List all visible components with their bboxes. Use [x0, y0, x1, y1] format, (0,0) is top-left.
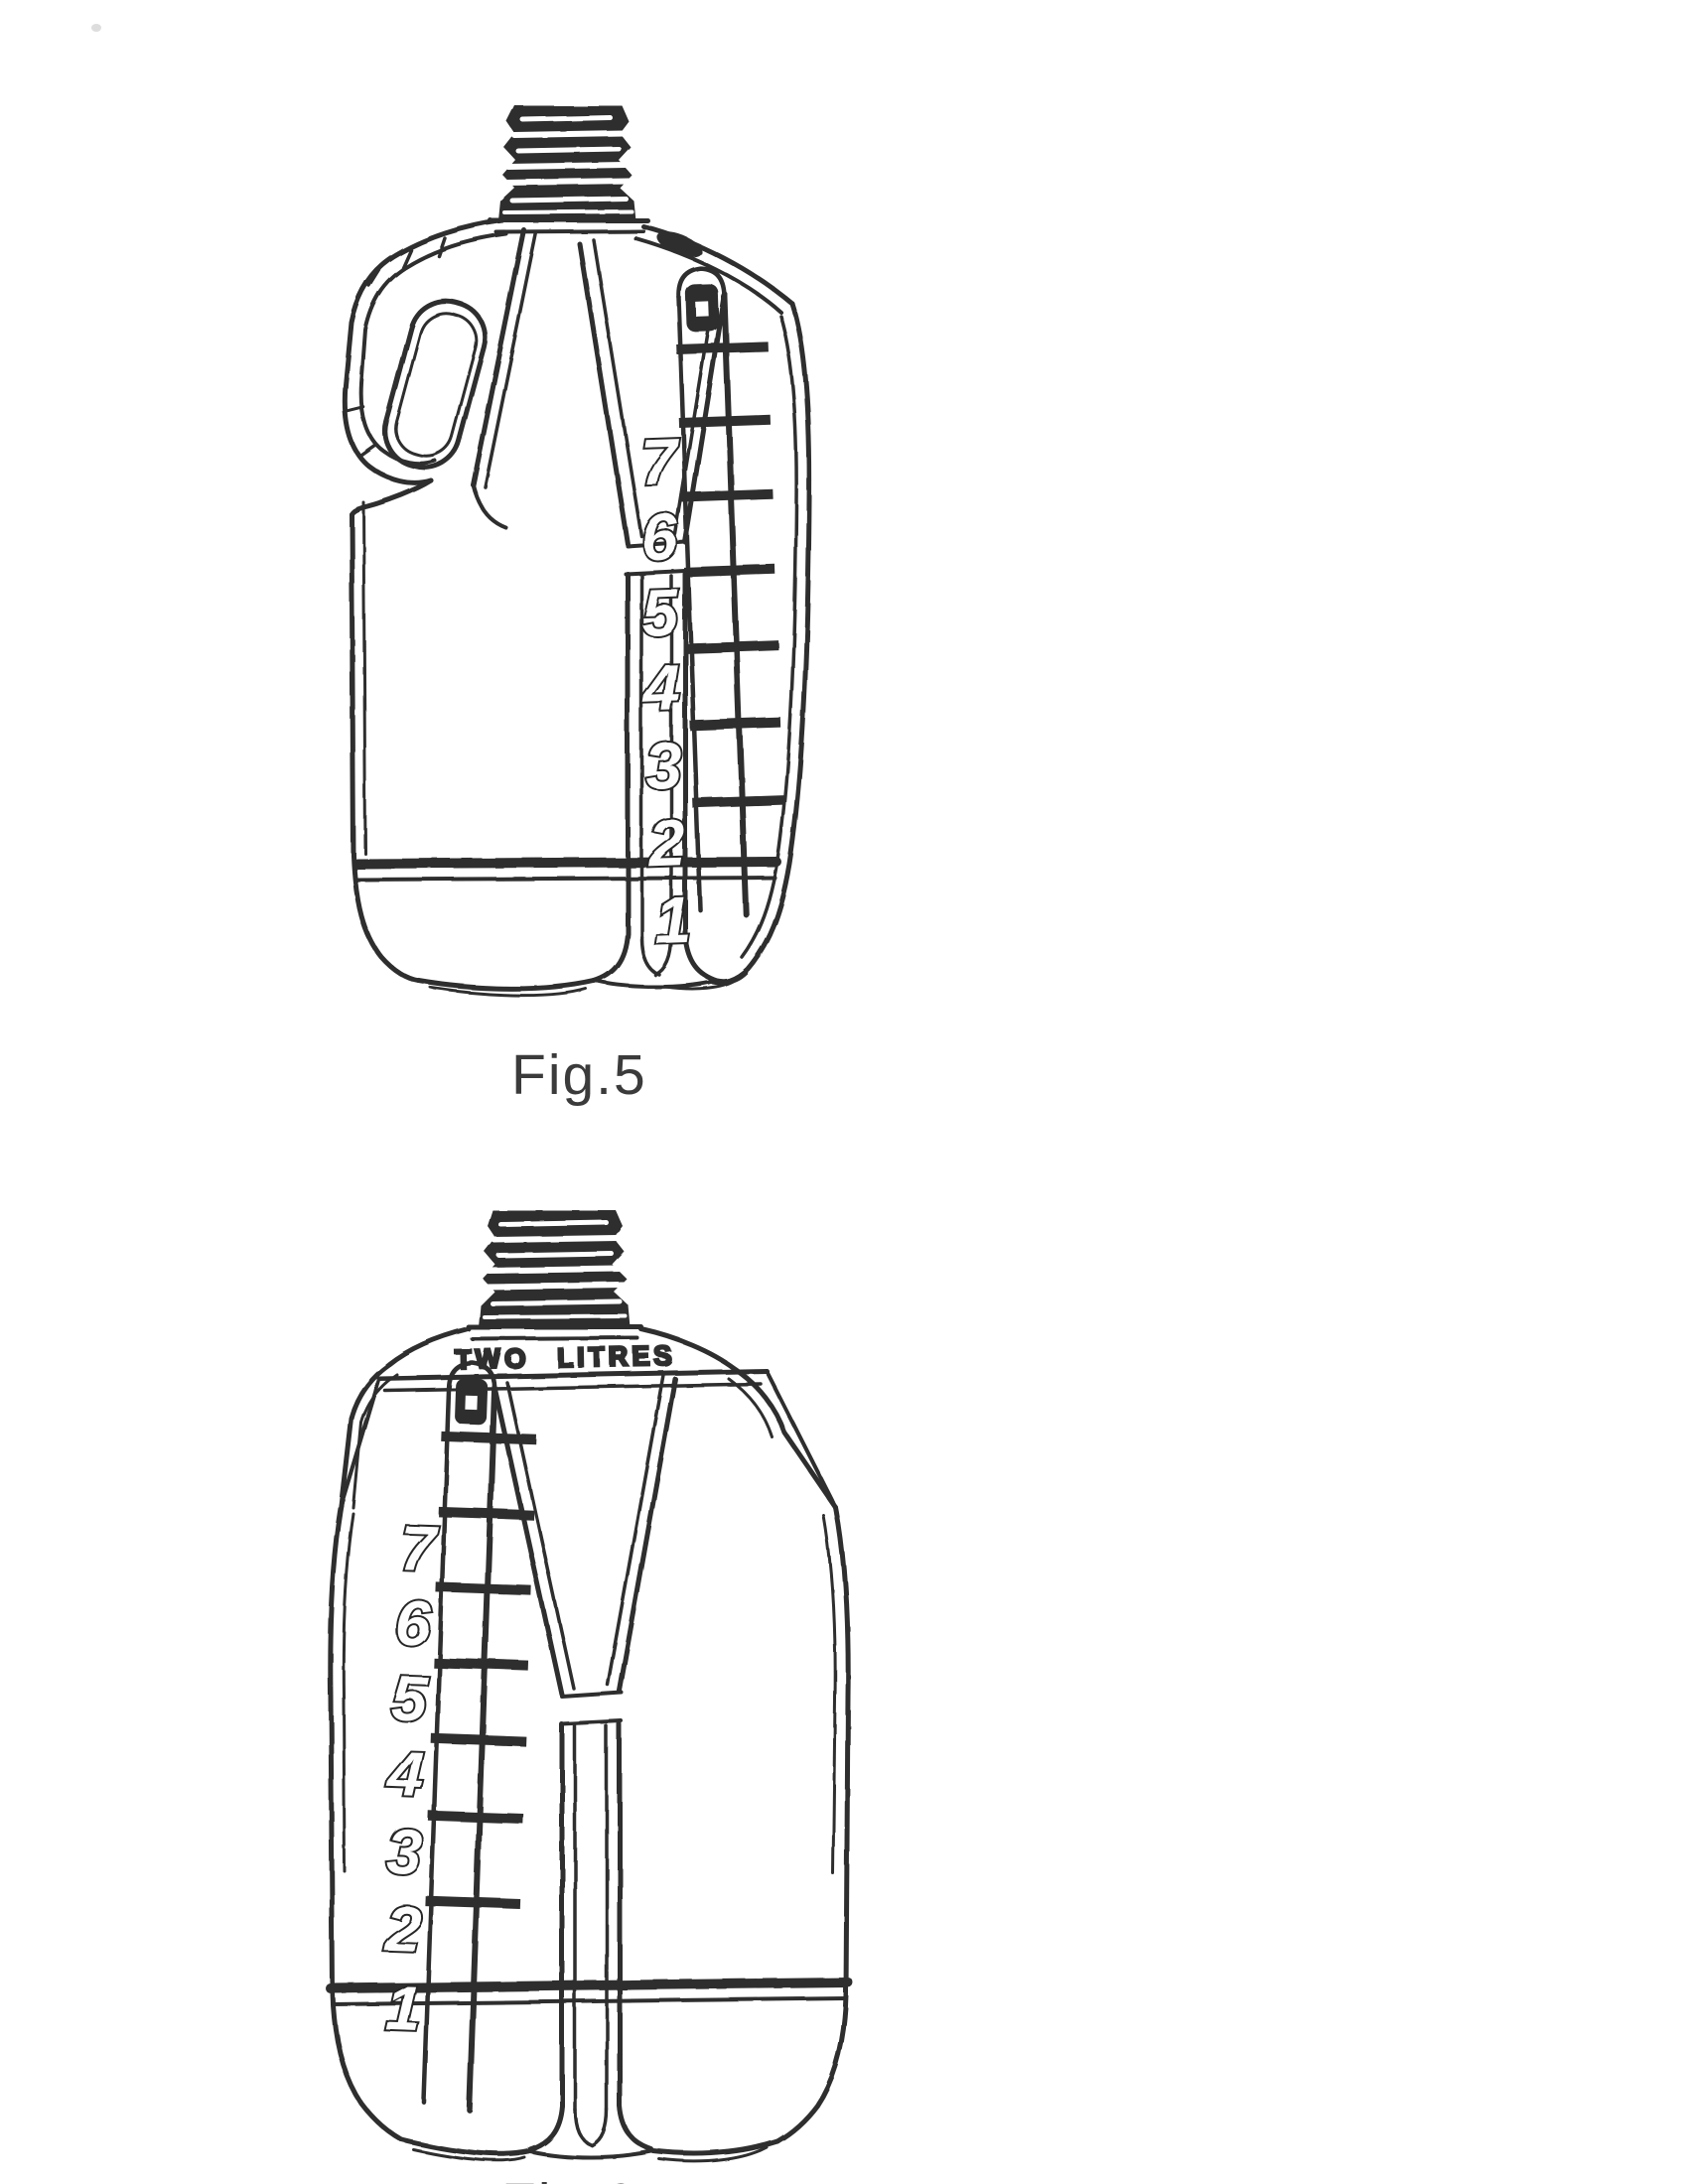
fig6-drawing: TWO LITRES [318, 1176, 884, 2184]
scale-number: 1 [653, 883, 692, 957]
label-band [357, 862, 776, 880]
scale-number: 6 [639, 499, 680, 574]
scale-number: 2 [645, 805, 687, 880]
scale-number: 3 [643, 728, 682, 802]
fig6-caption: Fig.6 [501, 2171, 740, 2184]
scale-number: 4 [384, 1737, 424, 1810]
handle-loop [345, 220, 536, 528]
patent-drawing-page: 7 6 5 4 3 2 1 Fig.5 [0, 0, 1688, 2184]
scale-number: 7 [398, 1512, 439, 1584]
left-edge [352, 502, 365, 856]
scale-number: 3 [385, 1815, 423, 1887]
scale-number: 2 [383, 1892, 422, 1965]
scale-number: 5 [640, 575, 681, 649]
handle-hole [376, 293, 492, 476]
scale-number: 5 [390, 1662, 429, 1734]
graduation-scale: 7 6 5 4 3 2 1 [627, 266, 788, 957]
fig6-caption-clipped: Fig.6 [501, 2171, 740, 2184]
fig5-caption: Fig.5 [511, 1042, 647, 1108]
bottle-neck-threads [479, 1210, 631, 1327]
scale-number: 1 [384, 1972, 422, 2044]
neck-flange [469, 1327, 641, 1339]
fig5-drawing: 7 6 5 4 3 2 1 [328, 79, 884, 1013]
photocopy-speck [91, 24, 101, 32]
v-channel [494, 1375, 675, 2157]
bottle-neck-threads [498, 105, 635, 220]
scale-number: 6 [394, 1586, 432, 1659]
scale-number: 7 [639, 424, 682, 498]
scale-number: 4 [640, 650, 681, 725]
neck-flange [491, 220, 647, 232]
